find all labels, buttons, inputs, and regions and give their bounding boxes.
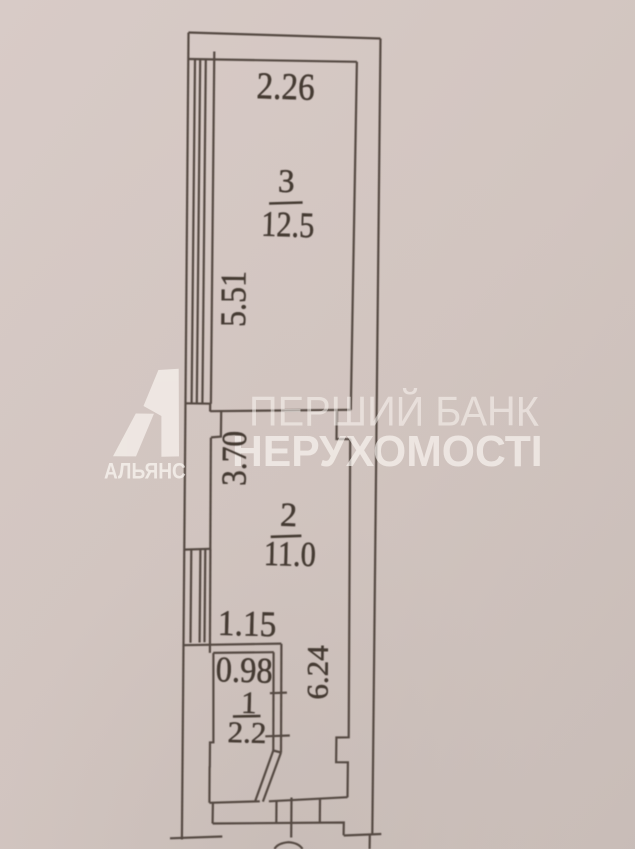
svg-text:2.2: 2.2 bbox=[227, 716, 267, 750]
svg-text:1.15: 1.15 bbox=[217, 603, 276, 645]
svg-text:2: 2 bbox=[280, 497, 298, 534]
svg-text:11.0: 11.0 bbox=[263, 534, 316, 574]
svg-text:5.51: 5.51 bbox=[213, 271, 253, 327]
svg-text:3: 3 bbox=[278, 164, 296, 201]
svg-text:3.70: 3.70 bbox=[215, 431, 254, 486]
svg-text:12.5: 12.5 bbox=[261, 204, 315, 246]
svg-text:2.26: 2.26 bbox=[256, 65, 315, 109]
svg-text:АЛЬЯНС: АЛЬЯНС bbox=[104, 459, 186, 484]
svg-text:НЕРУХОМОСТІ: НЕРУХОМОСТІ bbox=[232, 427, 543, 476]
svg-text:6.24: 6.24 bbox=[301, 645, 334, 700]
